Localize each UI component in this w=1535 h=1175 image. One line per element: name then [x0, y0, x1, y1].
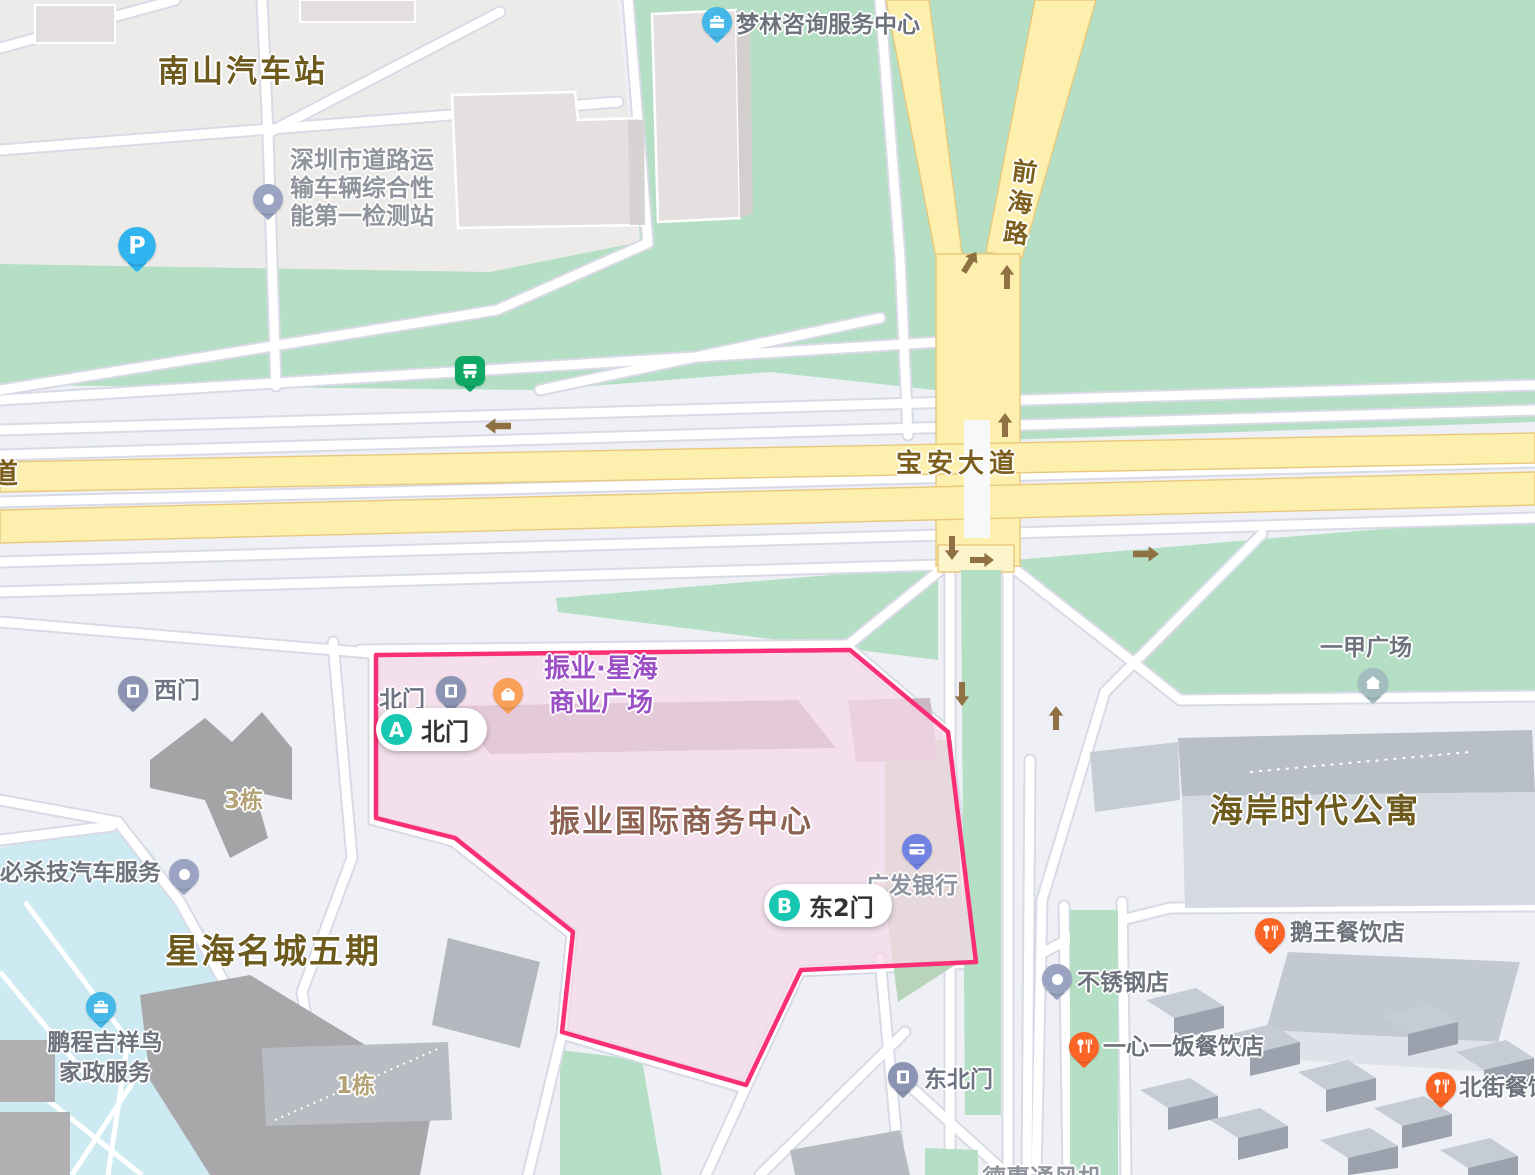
- parking-icon: P: [128, 232, 145, 260]
- label-yijia-plaza[interactable]: 一甲广场: [1320, 628, 1412, 662]
- label-baoan-avenue: 宝安大道: [896, 443, 1020, 480]
- briefcase-pin-menglin[interactable]: [702, 7, 732, 47]
- restaurant-pin-yixinyifan[interactable]: [1069, 1032, 1099, 1072]
- route-marker-b[interactable]: B 东2门: [764, 884, 892, 927]
- house-pin-yijia[interactable]: [1358, 668, 1388, 708]
- inspection-line2: 输车辆综合性: [282, 174, 442, 202]
- marker-b-badge: B: [769, 890, 800, 921]
- plaza-line2: 商业广场: [516, 686, 686, 720]
- gate-pin-west[interactable]: [118, 676, 148, 716]
- marker-a-label: 北门: [421, 712, 469, 747]
- label-northeast-gate: 东北门: [924, 1060, 993, 1094]
- bus-stop-pin[interactable]: [455, 356, 485, 396]
- label-haian-apartment: 海岸时代公寓: [1210, 784, 1420, 832]
- fork-spoon-icon: [1074, 1037, 1094, 1057]
- label-building-3: 3栋: [224, 781, 263, 815]
- restaurant-pin-beijie[interactable]: [1426, 1072, 1456, 1112]
- door-icon: [123, 681, 143, 701]
- house-icon: [1363, 673, 1383, 693]
- label-inspection-station: 深圳市道路运 输车辆综合性 能第一检测站: [282, 146, 442, 230]
- briefcase-icon: [707, 12, 727, 32]
- label-xinghai-mingcheng: 星海名城五期: [165, 924, 381, 973]
- label-zhenye-xinghai-plaza[interactable]: 振业·星海 商业广场: [516, 652, 686, 720]
- restaurant-pin-ewang[interactable]: [1255, 918, 1285, 958]
- label-west-gate: 西门: [154, 671, 200, 705]
- label-building-1: 1栋: [336, 1066, 375, 1100]
- base-map-canvas: [0, 0, 1535, 1175]
- label-pengcheng-housekeeping[interactable]: 鹏程吉祥鸟 家政服务: [30, 1028, 180, 1088]
- parking-pin[interactable]: P: [118, 227, 156, 277]
- pengcheng-line1: 鹏程吉祥鸟: [30, 1028, 180, 1058]
- shopping-bag-icon: [498, 683, 518, 703]
- gate-pin-northeast[interactable]: [888, 1062, 918, 1102]
- poi-pin-stainless[interactable]: [1042, 964, 1072, 1004]
- fork-spoon-icon: [1260, 923, 1280, 943]
- marker-a-badge: A: [381, 714, 412, 745]
- briefcase-pin-pengcheng[interactable]: [86, 992, 116, 1032]
- label-dehui-partial: 德惠通风机: [982, 1158, 1102, 1175]
- poi-pin-bisha-auto[interactable]: [169, 859, 199, 899]
- green-median: [961, 570, 1001, 1115]
- label-ewang-restaurant[interactable]: 鹅王餐饮店: [1290, 913, 1405, 947]
- briefcase-icon: [91, 997, 111, 1017]
- label-stainless-steel-shop[interactable]: 不锈钢店: [1077, 963, 1169, 997]
- label-yixinyifan-restaurant[interactable]: 一心一饭餐饮店: [1103, 1027, 1264, 1061]
- route-marker-a[interactable]: A 北门: [376, 708, 487, 751]
- label-menglin-consulting[interactable]: 梦林咨询服务中心: [736, 5, 920, 39]
- label-nanshan-bus-station: 南山汽车站: [158, 46, 328, 91]
- inspection-line3: 能第一检测站: [282, 202, 442, 230]
- marker-b-label: 东2门: [809, 888, 874, 923]
- pengcheng-line2: 家政服务: [30, 1058, 180, 1088]
- map-viewport[interactable]: 南山汽车站 深圳市道路运 输车辆综合性 能第一检测站 梦林咨询服务中心 前海路 …: [0, 0, 1535, 1175]
- bus-icon: [460, 361, 480, 381]
- inspection-line1: 深圳市道路运: [282, 146, 442, 174]
- label-beijie-restaurant[interactable]: 北街餐饮: [1459, 1068, 1535, 1102]
- door-icon: [893, 1067, 913, 1087]
- green-patch-bottom: [925, 1148, 978, 1175]
- plaza-line1: 振业·星海: [516, 652, 686, 686]
- fork-spoon-icon: [1431, 1077, 1451, 1097]
- bank-card-icon: [907, 839, 927, 859]
- poi-pin-inspection[interactable]: [253, 184, 283, 224]
- label-road-partial: 道: [0, 452, 18, 492]
- label-bisha-auto[interactable]: 必杀技汽车服务: [0, 853, 161, 887]
- door-icon: [441, 681, 461, 701]
- label-zhenye-business-center: 振业国际商务中心: [549, 796, 813, 841]
